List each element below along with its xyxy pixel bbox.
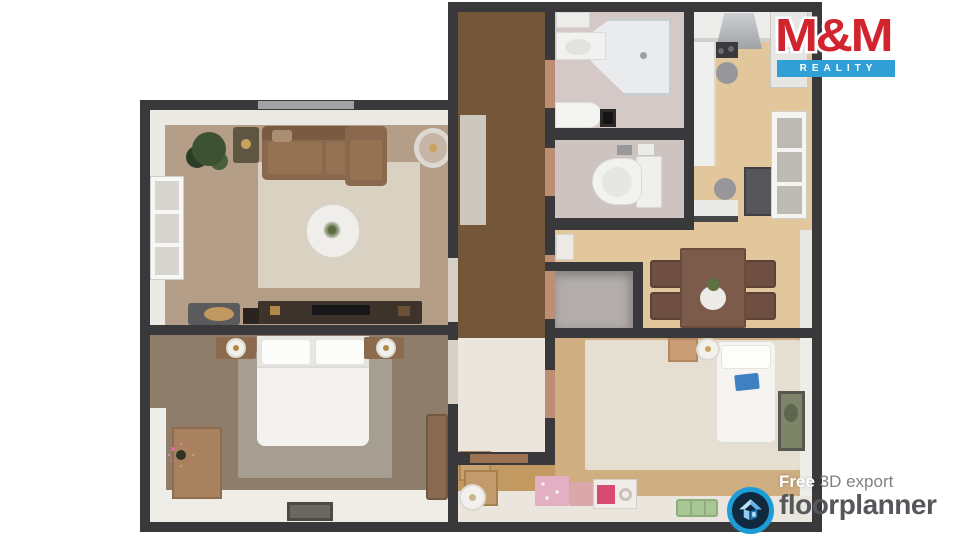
tv-screen xyxy=(312,305,370,315)
bed-pillow xyxy=(721,345,771,369)
living-top-window xyxy=(258,101,354,109)
wall-closet-top xyxy=(545,262,643,271)
table-plant xyxy=(323,221,341,239)
door-living-room xyxy=(448,258,458,322)
toy-box-pink xyxy=(535,476,569,506)
lamp-right xyxy=(376,338,396,358)
floor-plan-screenshot: M&M REALITY Free 3D export floorplanner xyxy=(0,0,960,540)
dresser xyxy=(172,427,222,499)
door-kids-room xyxy=(545,370,555,418)
dining-chair xyxy=(650,292,682,320)
living-room-window xyxy=(150,176,184,280)
storage-bench xyxy=(426,414,448,500)
round-coffee-table xyxy=(306,204,360,258)
vanity-sink xyxy=(556,32,606,60)
ceiling-fan xyxy=(414,128,452,168)
bathtub xyxy=(555,102,602,128)
pet-bed xyxy=(188,303,240,325)
toy-package xyxy=(593,479,637,509)
fridge-cabinet xyxy=(744,167,773,216)
package-band xyxy=(597,485,615,504)
window-pane xyxy=(155,247,179,275)
wall-wc-bottom xyxy=(545,218,694,230)
entry-door xyxy=(470,454,528,463)
bedroom-left-wallface xyxy=(150,408,166,490)
door-bedroom xyxy=(448,340,458,404)
bed-pillow xyxy=(261,339,311,365)
wall-outer-left xyxy=(140,100,150,532)
shower-drain xyxy=(640,52,647,59)
roll-center xyxy=(469,494,476,501)
kitchen-window xyxy=(771,111,807,219)
sofa-chaise xyxy=(345,126,387,186)
door-bathroom xyxy=(545,60,555,108)
kids-desk xyxy=(668,338,698,362)
chaise-cushion xyxy=(350,140,382,180)
wall-kids-room-top xyxy=(545,328,822,338)
speaker-box xyxy=(243,308,259,324)
side-table-decor xyxy=(241,139,251,149)
double-bed xyxy=(257,336,369,446)
hallway-runner-rug xyxy=(460,115,486,225)
package-circle xyxy=(619,488,632,501)
window-pane xyxy=(777,118,802,148)
toilet-seat xyxy=(602,167,632,197)
window-pane xyxy=(777,152,802,182)
cat xyxy=(204,307,234,321)
window-pane xyxy=(155,214,179,243)
bar-stool xyxy=(714,178,736,200)
stool-center xyxy=(705,346,711,352)
dining-right-wallface xyxy=(800,230,812,328)
kids-single-bed xyxy=(716,341,776,443)
sofa-cushion xyxy=(268,142,322,174)
wall-art xyxy=(778,391,805,451)
art-detail xyxy=(784,404,798,422)
wall-bathroom-wc-divider xyxy=(545,128,694,140)
burner xyxy=(728,46,734,52)
mm-logo-banner: REALITY xyxy=(777,60,895,77)
sofa-pillow xyxy=(272,130,292,142)
floorplanner-brand-label: floorplanner xyxy=(779,491,936,519)
mm-reality-logo: M&M REALITY xyxy=(773,14,923,80)
peninsula-counter xyxy=(694,200,738,222)
kitchen-counter-left xyxy=(694,42,716,166)
dining-chair xyxy=(744,292,776,320)
wall-closet-right xyxy=(633,262,643,338)
wall-outer-top xyxy=(448,2,822,12)
tv-console xyxy=(258,301,422,324)
dining-chair xyxy=(650,260,682,288)
small-cabinet xyxy=(556,234,574,260)
wall-shelf xyxy=(556,12,590,28)
lamp-left xyxy=(226,338,246,358)
side-table xyxy=(233,127,259,163)
console-decor xyxy=(270,306,280,315)
toy-box-rose xyxy=(569,482,593,506)
toilet-bowl xyxy=(592,158,642,205)
bar-stool xyxy=(716,62,738,84)
sink-basin xyxy=(565,39,591,55)
wc-wall-item xyxy=(638,144,654,155)
window-pane xyxy=(777,186,802,214)
lamp-center xyxy=(383,345,389,351)
wall-living-bedroom-divider xyxy=(140,325,458,335)
kids-stool xyxy=(696,338,720,361)
window-pane xyxy=(155,181,179,210)
lamp-center xyxy=(233,345,239,351)
closet-floor xyxy=(555,271,633,328)
floorplanner-house-icon xyxy=(727,487,774,534)
ceiling-fan-hub xyxy=(429,144,437,152)
green-toy-bench xyxy=(676,499,718,517)
bed-duvet xyxy=(257,366,369,446)
paper-roll xyxy=(459,484,486,511)
toy-on-bed xyxy=(734,373,760,391)
flower-vase xyxy=(176,450,186,460)
console-decor xyxy=(398,306,410,316)
living-room-top-wallface xyxy=(150,110,448,125)
mm-logo-subtitle: REALITY xyxy=(795,63,878,74)
door-wc xyxy=(545,148,555,196)
bed-pillow xyxy=(315,339,365,365)
burner xyxy=(718,48,724,54)
floorplanner-watermark: Free 3D export floorplanner xyxy=(725,465,960,540)
wall-kitchen-left xyxy=(684,2,694,230)
doormat xyxy=(287,502,333,521)
wc-wall-item xyxy=(617,145,632,155)
potted-plant xyxy=(192,132,226,166)
table-vase xyxy=(700,278,726,310)
wall-outer-right xyxy=(812,2,822,532)
dining-chair xyxy=(744,260,776,288)
vase-plant xyxy=(707,278,720,291)
dining-table xyxy=(680,248,746,328)
wall-outer-bottom xyxy=(140,522,822,532)
mm-logo-title: M&M xyxy=(775,14,891,56)
bath-mat xyxy=(600,109,616,127)
